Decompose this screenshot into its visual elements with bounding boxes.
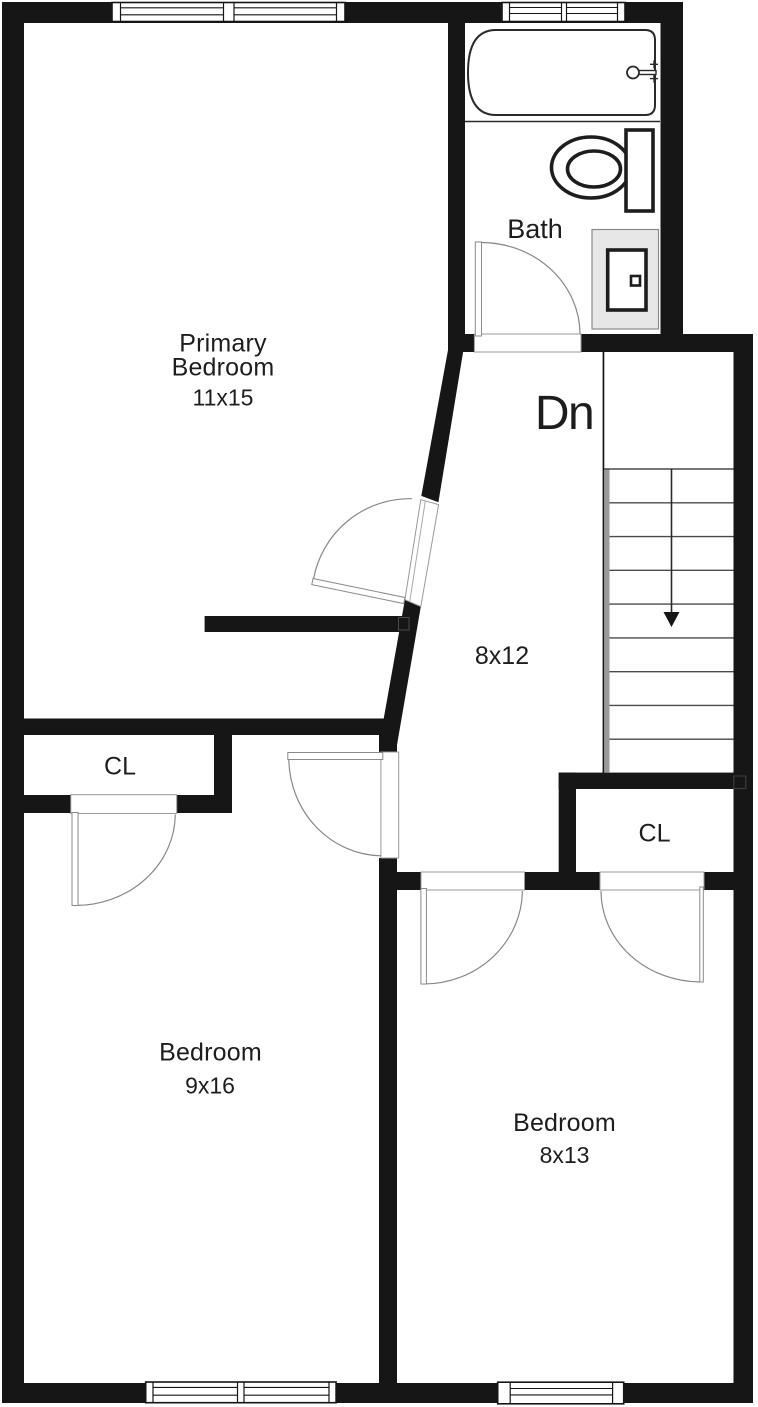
svg-text:11x15: 11x15 — [193, 385, 254, 411]
svg-text:Bedroom: Bedroom — [159, 1039, 262, 1067]
svg-text:8x13: 8x13 — [540, 1142, 590, 1168]
svg-text:CL: CL — [639, 820, 671, 848]
svg-text:CL: CL — [104, 753, 136, 781]
svg-text:8x12: 8x12 — [475, 642, 529, 670]
svg-text:Bedroom: Bedroom — [513, 1109, 616, 1137]
svg-text:9x16: 9x16 — [185, 1073, 235, 1099]
svg-text:Bedroom: Bedroom — [172, 354, 275, 382]
svg-text:Dn: Dn — [535, 387, 593, 440]
svg-text:Bath: Bath — [507, 214, 563, 244]
